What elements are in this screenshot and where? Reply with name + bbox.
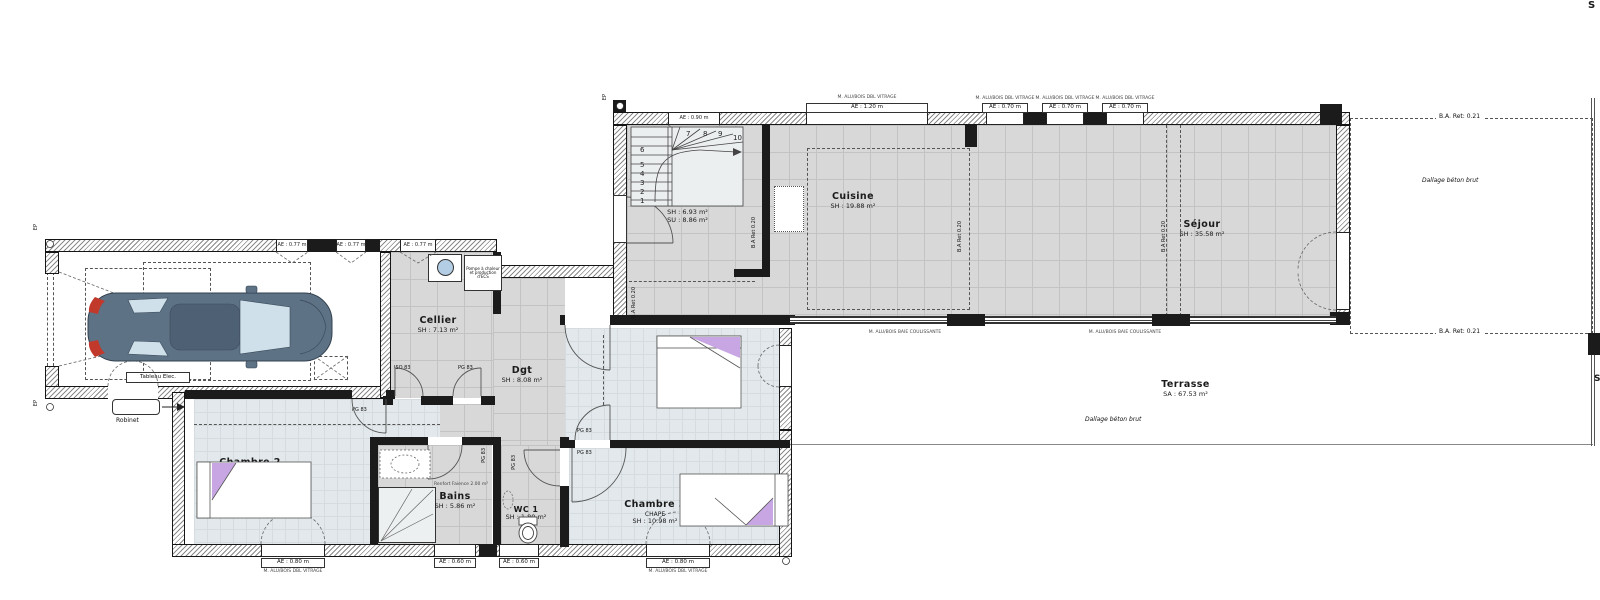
wall-entree-cuisine-v [762,125,770,277]
door-gap-entree-dgt [565,315,610,325]
window-wc-south [499,544,539,557]
garage-door-dashed-1 [47,272,48,366]
window-sejour-label-1: AE : 0.70 m [982,103,1028,113]
window-spacer-sejour-2 [1084,112,1106,125]
wall-bains-wc [493,437,501,544]
ep-marker-3: EP [603,94,608,100]
wall-cellier-south-c [481,396,495,405]
ba-ret-020-3: B.A Ret 0.20 [1162,221,1167,252]
window-bains-label: AE : 0.60 m [434,558,476,568]
baie-post-1b [947,314,985,326]
chambre2-dashed-line [194,424,440,425]
window-cuisine-north [806,112,928,125]
window-sejour-north-2 [1046,112,1084,125]
room-label-entree: Entrée SH : 6.93 m² SU : 8.86 m² [640,198,735,225]
door-label-pg83-chambre4: PG 83 [577,429,592,434]
ba-ret-021-top: B.A. Ret: 0.21 [1436,114,1483,120]
window-sejour-micro-2: M. ALU/BOIS DBL VITRAGE [1035,97,1095,102]
window-sejour-micro-3: M. ALU/BOIS DBL VITRAGE [1095,97,1155,102]
block-ne-corner [1320,104,1342,125]
window-spacer-sejour-1 [1024,112,1046,125]
block-south-windows [479,544,497,557]
window-sejour-north-1 [986,112,1024,125]
cuisine-ceiling-outline [807,148,970,310]
window-sejour-label-2: AE : 0.70 m [1042,103,1088,113]
window-cellier-north: AE : 0.77 m [400,239,436,252]
floor-chambre4 [565,328,779,440]
door-label-pg83-bains: PG 83 [482,448,487,463]
terrasse-bottom-line [790,444,1593,445]
room-label-dgt: Dgt SH : 8.08 m² [482,366,562,385]
wall-main-north [613,112,1350,125]
chambre4-dashed-line [603,335,604,405]
garage-area: SA : 22.05 m² [193,309,238,317]
wall-wc-chambre3-b [560,486,569,547]
block-nw-entree [613,100,626,112]
door-label-pg83-cellier: PG 83 [458,366,473,371]
wall-ch3-ch4-a [563,440,575,448]
window-sejour-north-3 [1106,112,1144,125]
garage-attente-box [314,356,348,380]
door-label-pg83-chambre2: PG 83 [352,408,367,413]
door-gap-front [613,195,627,243]
wall-cellier-south-b [421,396,453,405]
wall-entree-cuisine-h [734,269,770,277]
wall-bains-north-b [462,437,496,445]
window-spacer-garage-2 [366,239,380,252]
robinet-box [112,399,160,415]
window-chambre4-east [779,345,792,387]
post-cuisine [965,125,977,147]
window-bains-south [434,544,476,557]
robinet-label: Robinet [116,418,139,424]
block-terrace-edge [1588,333,1600,355]
window-chambre2-label: AE : 0.80 m [261,558,325,568]
baie-post-2b [1152,314,1190,326]
floor-dgt [493,278,565,445]
floor-plan: M. ALU/BOIS BAIE COULISSANTE M. ALU/BOIS… [0,0,1600,600]
wall-cellier-south-a [383,396,393,405]
dallage-label-terrasse: Dallage béton brut [1085,417,1141,423]
door-label-iso83: ISO 83 [394,366,411,371]
wall-bedrooms-west [172,392,185,557]
room-label-wc1: WC 1 SH : 1.80 m² [495,505,557,522]
room-label-cellier: Cellier SH : 7.13 m² [395,316,481,335]
wall-garage-east [380,252,391,398]
window-chambre2-micro: M. ALU/BOIS DBL VITRAGE [261,570,325,575]
entree-dashed-line [629,281,755,282]
washing-machine-drum [437,259,454,276]
ba-ret-021-bottom: B.A. Ret: 0.21 [1436,329,1483,335]
wall-dgt-north [490,265,617,278]
window-sejour-micro-1: M. ALU/BOIS DBL VITRAGE [975,97,1035,102]
garage-parking-outline-b [143,262,311,381]
ep-marker-2: EP [34,400,39,406]
window-chambre3-label: AE : 0.80 m [646,558,710,568]
window-sejour-east [1336,232,1350,310]
room-label-chambre2: Chambre 2 CHAPE SH : 12.56 m² [195,458,305,484]
room-label-bains: Bains SH : 5.86 m² [418,492,492,511]
garage-door-dashed-2 [53,272,54,366]
extension-dalle-outline [1350,118,1593,334]
wall-bains-north-a [370,437,428,445]
window-sejour-label-3: AE : 0.70 m [1102,103,1148,113]
pac-note: Pompe à chaleur et production d'ECS [464,255,502,291]
ba-ret-020-2: B.A Ret 0.20 [958,221,963,252]
window-cuisine-label: AE : 1.20 m [806,103,928,113]
terrasse-right-edge [1591,98,1595,446]
window-garage-north-1: AE : 0.77 m [276,239,308,252]
window-chambre3-south [646,544,710,557]
baie-label-1: M. ALU/BOIS BAIE COULISSANTE [820,331,990,336]
window-entree-north: AE : 0.90 m [668,112,720,125]
ep-marker-1: EP [34,224,39,230]
baie-vitree-sejour [790,316,1336,324]
wall-bains-west [370,437,378,545]
floor-wc [501,445,560,544]
kitchen-island [774,186,804,232]
door-label-pg83-wc: PG 83 [512,455,517,470]
window-cuisine-micro: M. ALU/BOIS DBL VITRAGE [806,96,928,101]
wall-bedrooms-east [779,430,792,557]
room-label-terrasse: Terrasse SA : 67.53 m² [1138,380,1233,399]
room-label-chambre4: Chambre 4 CHAPE SH : 10.98 m² [632,350,742,376]
window-garage-north-2: AE : 0.77 m [336,239,366,252]
dallage-label-extension: Dallage béton brut [1422,178,1478,184]
floor-chambre3 [569,448,779,544]
wall-ch3-ch4-b [610,440,790,448]
baie-label-2: M. ALU/BOIS BAIE COULISSANTE [1040,331,1210,336]
s-marker-top: S [1588,0,1595,11]
ba-ret-020-1: B.A Ret 0.20 [752,217,757,248]
room-label-cuisine: Cuisine SH : 19.88 m² [808,192,898,211]
tableau-elec-label: Tableau Elec. [126,372,190,383]
window-chambre2-south [261,544,325,557]
wall-garage-west-top [45,252,59,274]
door-gap-garage-south [108,386,158,399]
renfort-note: Renfort Faience 2.00 m² [430,483,492,488]
window-wc-label: AE : 0.60 m [499,558,539,568]
ba-ret-020-4: B.A Ret 0.20 [632,287,637,318]
room-label-garage: Garage SA : 22.05 m² [160,298,270,317]
window-chambre3-micro: M. ALU/BOIS DBL VITRAGE [646,570,710,575]
wall-chambre2-north [185,390,352,399]
door-label-pg83-chambre3: PG 83 [577,451,592,456]
s-marker-right: S [1594,374,1600,384]
window-spacer-garage [308,239,336,252]
room-label-chambre3: Chambre 3 CHAPE SH : 10.98 m² [600,500,710,526]
room-label-sejour: Séjour SH : 35.58 m² [1152,220,1252,239]
